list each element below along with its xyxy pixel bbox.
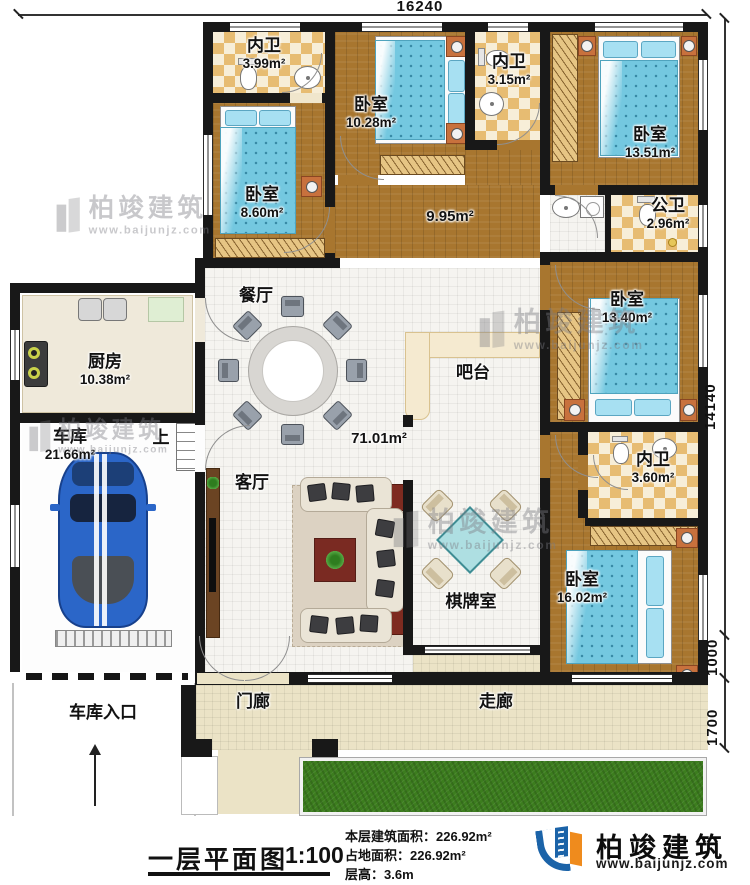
car-stripe [94,454,99,626]
door-threshold [540,435,550,478]
brand-website: www.baijunjz.com [596,856,729,871]
nightstand-icon [681,36,697,56]
wardrobe-icon [380,155,465,175]
bed-pillow [641,41,676,58]
window [488,22,528,32]
kitchen-sink-icon [78,298,102,321]
window [230,22,300,32]
room-label-chess: 棋牌室 [446,592,497,612]
wall [540,252,708,262]
stat-floor-height: 层高：3.6m [345,864,414,883]
plan-title: 一层平面图 [148,840,288,876]
room-label-garage: 车库21.66m² [45,427,95,462]
window [10,505,20,567]
bed-pillow [646,608,664,658]
nightstand-icon [680,399,697,421]
room-label-pub-bath: 公卫2.96m² [647,196,690,231]
window [425,646,530,654]
stairs-icon [176,423,196,471]
bed-pillow [646,556,664,606]
stove-burner [28,347,40,359]
floor-drain-icon [668,238,677,247]
wall [540,478,550,672]
wall [465,22,475,150]
wall [10,283,203,293]
room-label-bed-860: 卧室8.60m² [241,185,284,220]
car-mirror [146,504,156,511]
chair-icon [346,359,367,382]
chair-icon [218,359,239,382]
sofa-cushion [376,549,396,568]
bed-pillow [448,60,465,92]
door-threshold [540,265,550,310]
sofa-cushion [375,519,396,539]
sofa-cushion [331,482,351,501]
room-label-bed-1351: 卧室13.51m² [625,125,675,160]
plant-icon [326,551,344,569]
wall [403,480,413,645]
door-threshold [195,298,205,342]
room-label-bed-1340: 卧室13.40m² [602,290,652,325]
sofa-cushion [307,483,327,502]
nightstand-icon [676,528,698,548]
room-label-bath-315: 内卫3.15m² [488,52,531,87]
dimension-line-right [724,18,726,749]
watermark-logo-icon [55,198,82,233]
room-label-living: 客厅 [235,473,269,493]
door-threshold [290,93,322,103]
watermark: 柏竣建筑www.baijunjz.com [55,195,211,236]
floor-porch-corridor [196,685,708,750]
door-threshold [555,185,598,195]
nightstand-icon [446,123,467,144]
nightstand-icon [446,36,467,57]
wall [195,258,340,268]
stove-burner [28,367,40,379]
room-label-stairs: 上 [153,428,170,448]
dimension-line-top [18,14,708,16]
garage-door-dashed [26,673,188,680]
bed-pillow [595,399,632,416]
car-mirror [50,504,60,511]
wardrobe-icon [552,34,578,162]
wall [540,22,550,195]
room-label-hall: 9.95m² [426,208,474,225]
nightstand-icon [564,399,585,421]
dining-table-top [262,340,324,402]
toilet-icon [478,48,485,66]
room-label-bath-399: 内卫3.99m² [243,36,286,71]
room-label-bed-1602: 卧室16.02m² [557,570,607,605]
room-label-porch: 门廊 [236,692,270,712]
dimension-label-right-bottom: 1700 [704,692,721,746]
bed-quilt [566,550,638,664]
bed-pillow [448,93,465,125]
window [572,674,672,683]
floor-plan-canvas: 内卫3.99m² 卧室10.28m² 内卫3.15m² 卧室13.51m² 卧室… [0,0,750,885]
wall [540,252,550,265]
stat-floor-area: 本层建筑面积：226.92m² [345,826,492,845]
porch-steps [218,750,312,814]
dimension-label-top: 16240 [397,0,444,15]
plant-icon [207,477,219,489]
chair-icon [281,424,304,445]
brand-logo-icon [538,823,588,877]
nightstand-icon [301,176,322,197]
dimension-label-right-mid: 1000 [704,630,721,676]
porch-pillar [181,739,212,757]
wall [585,518,698,526]
wall [10,413,203,423]
garage-grate-icon [55,630,172,647]
wall [403,415,413,427]
up-arrow-stem [94,754,96,806]
window [698,60,708,130]
kitchen-sink-icon [103,298,127,321]
bed-pillow [259,110,291,126]
room-label-corridor: 走廊 [479,692,513,712]
sofa-cushion [335,616,355,635]
door-threshold [195,425,205,472]
sofa-cushion [309,615,329,634]
steps-side-block [181,756,218,815]
window [10,330,20,380]
cutting-board-icon [148,297,184,322]
bed-pillow [603,41,638,58]
room-label-great-room: 71.01m² [351,430,407,447]
floor-hall-upper [465,150,540,185]
car-stripe [102,454,107,626]
room-label-bar: 吧台 [456,363,490,383]
window [203,135,213,215]
floor-chess-south-patch [413,655,540,672]
porch-pillar [312,739,338,757]
plan-scale: 1:100 [285,842,344,869]
dimension-label-right-main: 14140 [702,350,719,430]
sofa-cushion [359,614,378,632]
tv-icon [209,518,216,592]
window [595,22,683,32]
bar-counter-icon [405,332,430,420]
room-label-bed-1028: 卧室10.28m² [346,95,396,130]
window [308,674,392,683]
lawn [300,758,706,815]
window [698,205,708,247]
room-label-bath-360: 内卫3.60m² [632,450,675,485]
room-label-kitchen: 厨房10.38m² [80,352,130,387]
bed-pillow [634,399,671,416]
wall [550,422,698,432]
chair-icon [281,296,304,317]
sofa-cushion [355,484,374,503]
window [362,22,442,32]
wall [540,310,550,435]
wall [325,253,335,268]
room-label-garage-entry: 车库入口 [69,703,137,723]
wall [578,490,588,518]
stat-site-area: 占地面积：226.92m² [345,845,466,864]
wall [325,22,335,207]
room-label-dining: 餐厅 [239,286,273,306]
wall [605,195,611,252]
nightstand-icon [578,36,596,56]
bed-pillow [225,110,257,126]
sofa-cushion [375,579,395,598]
title-underline [148,872,330,876]
toilet-icon [612,436,628,442]
